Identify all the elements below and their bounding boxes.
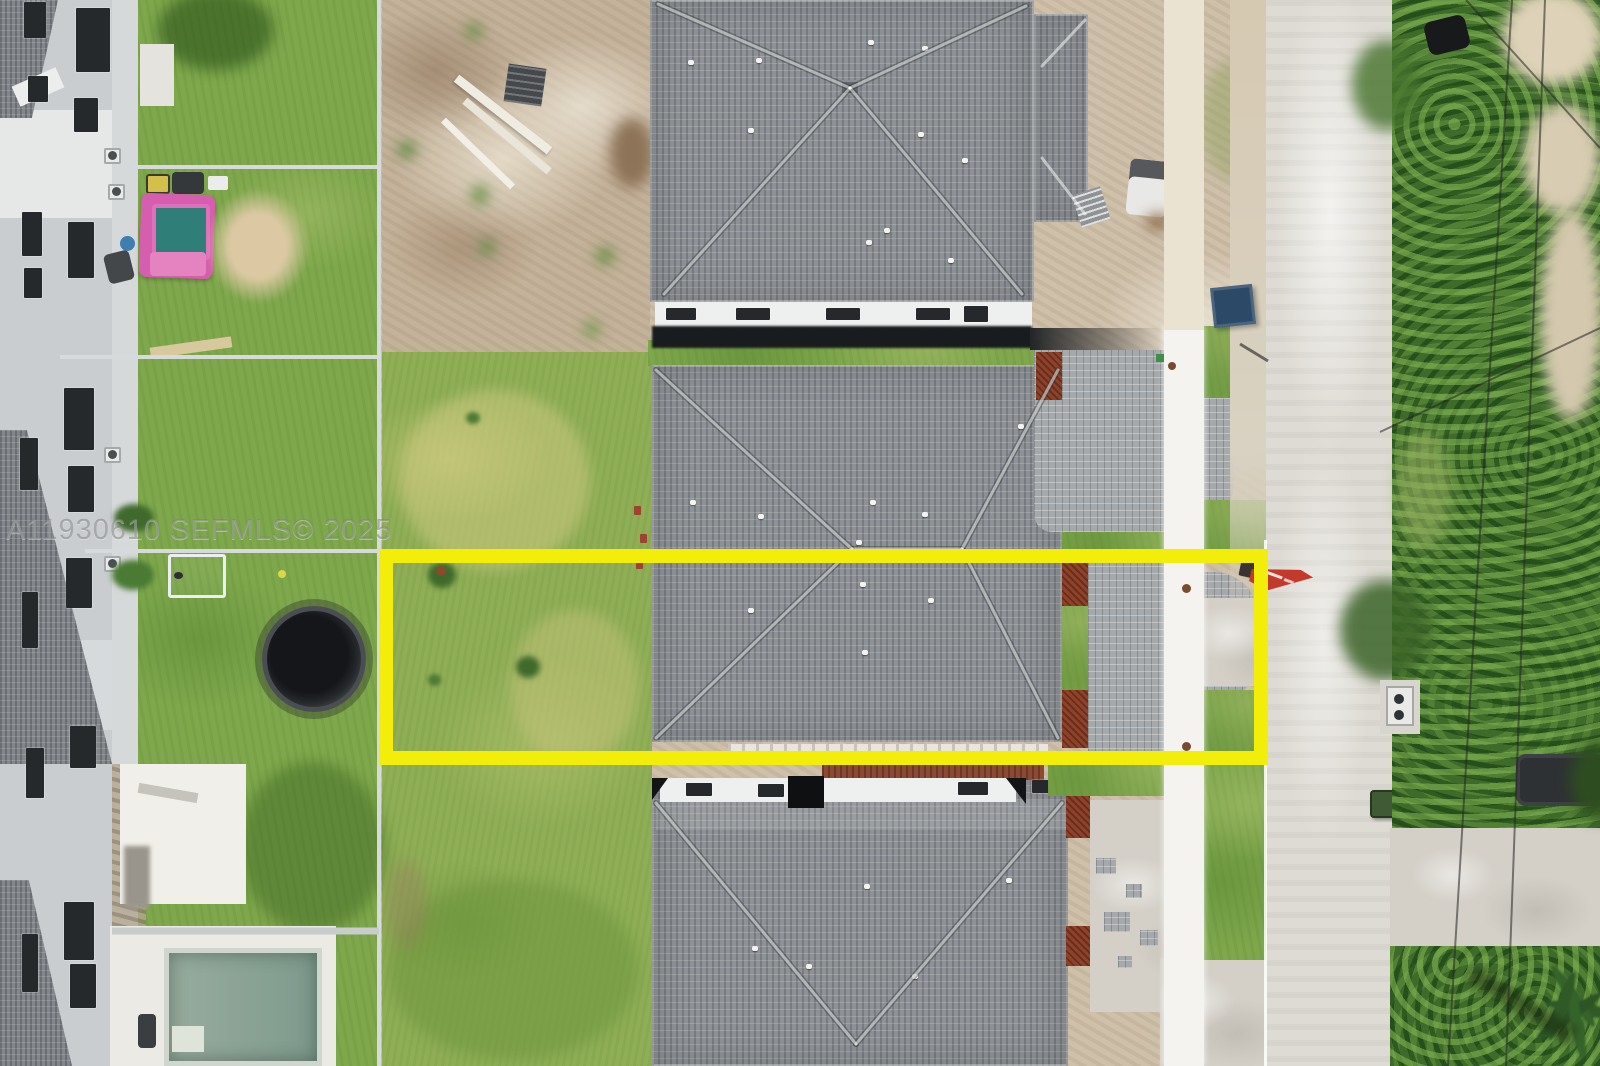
sand-gap	[1524, 104, 1600, 214]
townhouse-window	[74, 98, 98, 132]
townhouse-window	[70, 726, 96, 768]
townhouse-window	[64, 388, 94, 450]
ac-unit	[108, 184, 125, 200]
flower-bed	[112, 560, 154, 590]
roof-vent	[806, 964, 812, 969]
paver-patch	[1096, 858, 1116, 874]
townhouse-window	[68, 222, 94, 278]
soffit-window	[758, 784, 784, 797]
trampoline	[262, 606, 366, 712]
neighbor-driveway	[1390, 828, 1600, 946]
blue-dumpster	[1210, 284, 1256, 328]
trench-shadow	[1030, 328, 1162, 350]
dirt-dark-patch	[610, 118, 654, 188]
roof-vent	[868, 40, 874, 45]
townhouse-window	[22, 934, 38, 992]
dirt-spot	[386, 860, 426, 950]
townhouse-window	[70, 964, 96, 1008]
pool-steps	[172, 1026, 204, 1052]
mulch-bed	[1036, 352, 1062, 400]
aerial-photo: A11930610 SEFMLS© 2025	[0, 0, 1600, 1066]
cooler	[208, 176, 228, 190]
top-house-roof-extension	[1034, 14, 1088, 222]
utility-box	[1386, 686, 1414, 726]
grass-gap	[1396, 430, 1452, 550]
dog	[174, 572, 183, 579]
soffit-window	[736, 308, 770, 320]
marker-flag	[634, 506, 641, 515]
tree-canopy-overhang	[1352, 40, 1422, 130]
soffit-window	[826, 308, 860, 320]
tree-canopy-overhang	[1340, 580, 1430, 680]
bottom-house-ridge-band	[656, 800, 1066, 830]
townhouse-window	[66, 558, 92, 608]
weed	[466, 24, 482, 38]
mulch-bed	[1066, 792, 1090, 838]
roof-vent	[758, 514, 764, 519]
construction-dirt-lot	[382, 0, 650, 354]
ac-unit	[104, 447, 121, 463]
townhouse-window	[76, 8, 110, 72]
roof-vent	[922, 512, 928, 517]
grill	[172, 172, 204, 194]
roof-vent	[690, 500, 696, 505]
roof-access-opening	[788, 776, 824, 808]
townhouse-window	[28, 76, 48, 102]
soffit-window	[916, 308, 950, 320]
townhouse-window	[22, 212, 42, 256]
roof-vent	[756, 58, 762, 63]
weed	[480, 240, 494, 254]
sand-gap	[1540, 210, 1600, 420]
weed	[596, 248, 614, 264]
soffit-window	[686, 783, 712, 796]
roof-vent	[748, 128, 754, 133]
marker-flag	[640, 534, 647, 543]
playhouse-slide	[150, 252, 206, 276]
wood-pallet	[504, 64, 547, 107]
roof-vent	[870, 500, 876, 505]
paver-patch	[1140, 930, 1158, 946]
roof-vent	[1018, 424, 1024, 429]
blue-bucket	[120, 236, 135, 251]
utility-box-port	[1394, 710, 1404, 720]
roof-vent	[912, 974, 918, 979]
roof-vent	[752, 946, 758, 951]
roof-vent	[884, 228, 890, 233]
overgrown-grass	[240, 762, 385, 932]
sand-patch	[206, 188, 310, 304]
roof-vent	[688, 60, 694, 65]
grass-yellow-patch	[400, 390, 590, 570]
slab-debris	[124, 846, 150, 908]
weed	[584, 322, 600, 336]
top-house-shadow	[652, 326, 1032, 348]
roof-vent	[864, 884, 870, 889]
roof-vent	[948, 258, 954, 263]
townhouse-window	[24, 2, 46, 38]
sidewalk-marker	[1168, 362, 1176, 370]
top-house-roof	[650, 0, 1034, 302]
weed	[472, 186, 488, 204]
townhouse-window	[68, 466, 94, 512]
roof-vent	[962, 158, 968, 163]
paver-patch	[1126, 884, 1142, 898]
soffit-window	[964, 306, 988, 322]
weed	[398, 142, 416, 158]
chimney-vent	[840, 80, 860, 95]
grass-strip	[1204, 764, 1268, 960]
paver-patch	[1118, 956, 1132, 968]
townhouse-window	[22, 592, 38, 648]
property-lot-outline	[379, 549, 1268, 765]
concrete-pad	[140, 44, 174, 106]
roof-vent	[856, 540, 862, 545]
roof-vent	[922, 46, 928, 51]
roof-vent	[866, 240, 872, 245]
worker-figure	[138, 1014, 156, 1048]
utility-flag-green	[1156, 354, 1164, 362]
yellow-toy	[146, 174, 170, 194]
yellow-ball	[278, 570, 286, 578]
townhouse-window	[20, 438, 38, 490]
townhouse-wall-light	[0, 110, 126, 218]
sidewalk-sand-top	[1164, 0, 1204, 330]
street	[1266, 0, 1394, 1066]
utility-box-port	[1394, 694, 1404, 704]
townhouse-window	[24, 268, 42, 298]
shrub	[466, 412, 480, 424]
paver-patch	[1104, 912, 1130, 932]
townhouse-window	[26, 748, 44, 798]
mulch-bed	[1066, 926, 1090, 966]
soffit-window	[958, 782, 988, 795]
roof-vent	[1006, 878, 1012, 883]
ac-unit	[104, 148, 121, 164]
roof-vent	[918, 132, 924, 137]
townhouse-window	[64, 902, 94, 960]
mls-watermark: A11930610 SEFMLS© 2025	[6, 514, 392, 547]
soffit-window	[666, 308, 696, 320]
